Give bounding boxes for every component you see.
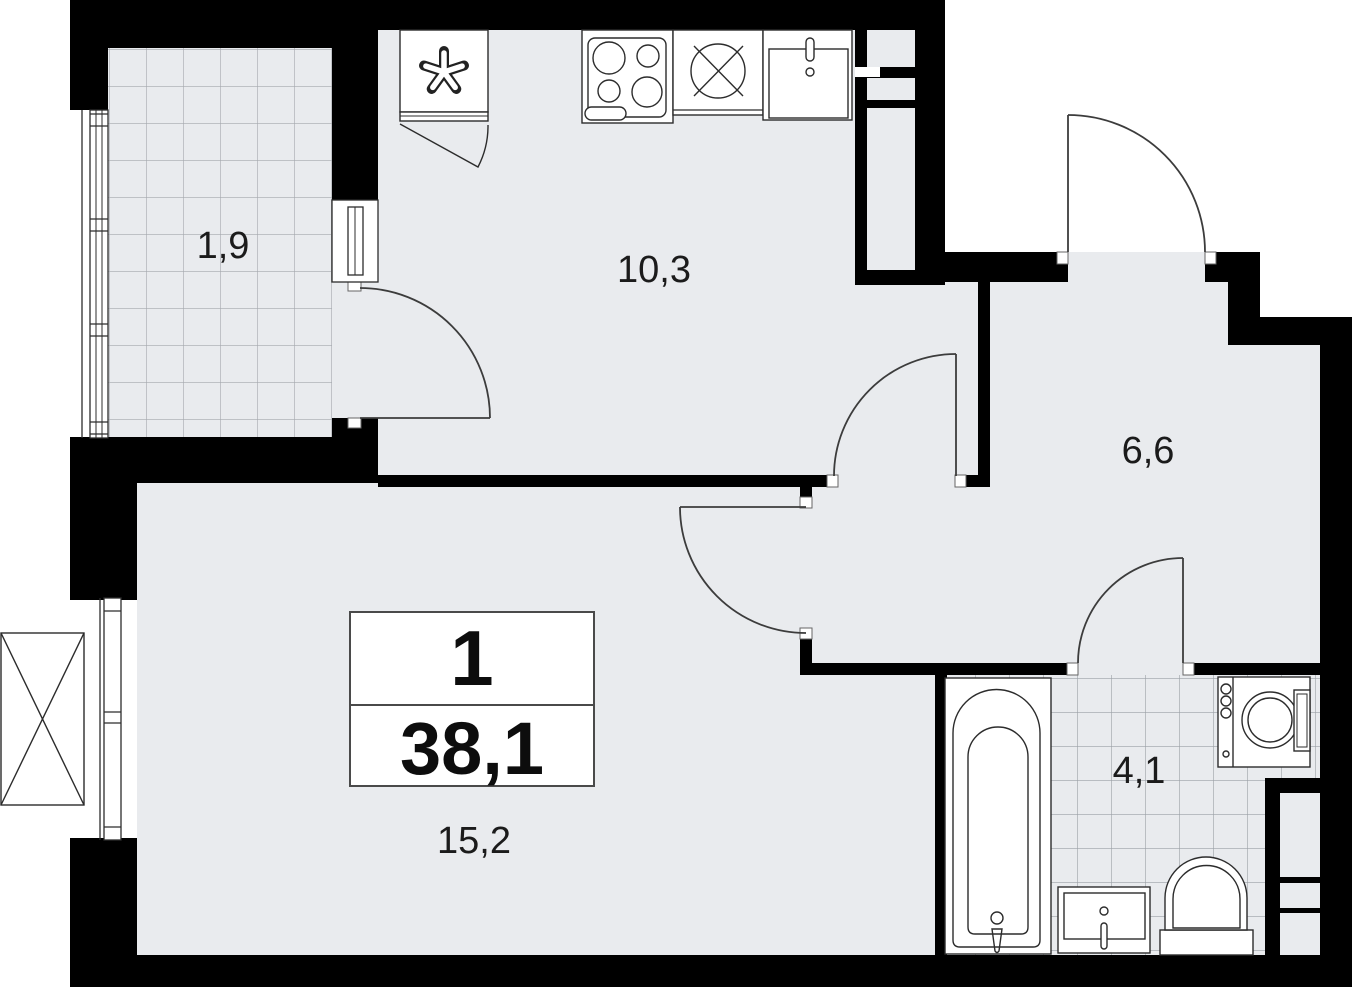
unit-total-area: 38,1 xyxy=(351,706,593,791)
bathroom-sink-icon xyxy=(1058,887,1150,953)
balcony-door-threshold xyxy=(332,282,378,418)
floor-plan: 1,9 10,3 6,6 4,1 15,2 1 38,1 xyxy=(0,0,1352,987)
unit-info-card: 1 38,1 xyxy=(349,611,595,787)
entrance-door-swing-icon xyxy=(1068,115,1205,252)
hallway-floor-top xyxy=(990,282,1228,345)
balcony-block-window-icon xyxy=(332,200,378,282)
balcony-glazing-icon xyxy=(82,110,108,438)
floors xyxy=(108,30,1320,955)
ac-unit-icon xyxy=(1,633,84,805)
room-label-living-room: 15,2 xyxy=(437,822,511,860)
room-label-bathroom: 4,1 xyxy=(1113,752,1166,790)
unit-rooms-count: 1 xyxy=(351,613,593,706)
hood-icon xyxy=(673,30,763,115)
washing-machine-icon xyxy=(1218,677,1310,767)
stove-icon xyxy=(582,30,673,123)
room-label-hallway: 6,6 xyxy=(1122,432,1175,470)
room-label-kitchen: 10,3 xyxy=(617,251,691,289)
living-door-threshold xyxy=(800,507,812,628)
living-window-icon xyxy=(100,598,121,840)
floor-plan-drawing xyxy=(0,0,1352,987)
room-label-balcony: 1,9 xyxy=(197,227,250,265)
living-room-floor-right xyxy=(800,675,935,955)
kitchen-sink-icon xyxy=(763,30,852,120)
hallway-floor-main xyxy=(990,345,1320,663)
hallway-floor-left xyxy=(812,487,990,663)
kitchen-door-threshold xyxy=(837,475,955,487)
kitchen-floor-right xyxy=(855,282,978,475)
bathtub-icon xyxy=(945,678,1051,954)
bath-door-threshold xyxy=(1078,663,1183,675)
entrance-threshold xyxy=(1068,252,1205,282)
